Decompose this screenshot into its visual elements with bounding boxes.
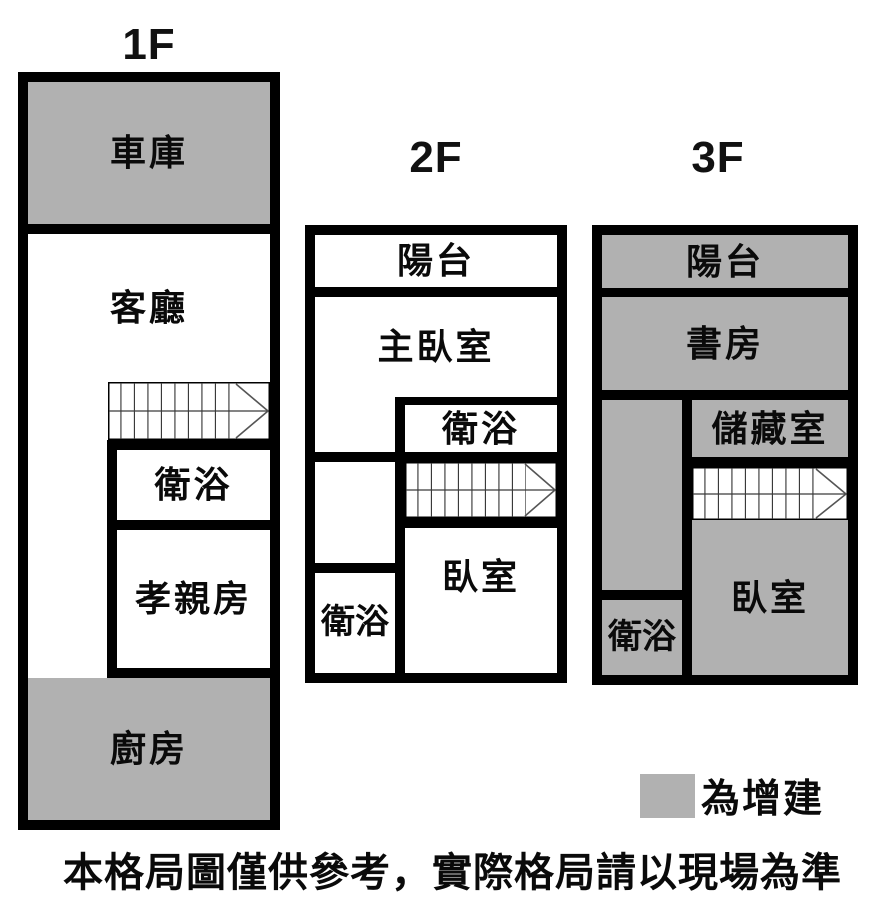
- room-balcony-3f-label: 陽台: [686, 242, 764, 282]
- room-bath-3f: 衛浴: [602, 600, 682, 675]
- room-parents-label: 孝親房: [135, 579, 252, 619]
- addition-swatch: [640, 774, 695, 818]
- room-bedroom-3f-label: 臥室: [731, 578, 809, 618]
- room-living-label: 客廳: [110, 288, 188, 328]
- room-garage: 車庫: [28, 82, 270, 224]
- room-kitchen: 廚房: [28, 678, 270, 820]
- room-bath-3f-label: 衛浴: [608, 619, 676, 656]
- room-bath-2f-upper-label: 衛浴: [442, 409, 520, 449]
- floorplan-canvas: 1F 車庫 客廳 衛浴 孝親房 廚房 2F: [0, 0, 889, 890]
- floorplan-2f: 陽台 主臥室 衛浴 臥室 衛浴: [305, 225, 567, 683]
- room-living: 客廳: [28, 234, 270, 382]
- wall: [602, 390, 848, 400]
- wall: [682, 457, 848, 467]
- room-master-bedroom: 主臥室: [315, 297, 557, 397]
- wall: [602, 288, 848, 297]
- floorplan-1f: 車庫 客廳 衛浴 孝親房 廚房: [18, 72, 280, 830]
- room-bath-2f-lower-label: 衛浴: [321, 604, 389, 641]
- wall: [315, 563, 395, 573]
- room-bath-2f-upper: 衛浴: [405, 405, 557, 452]
- room-balcony-3f: 陽台: [602, 235, 848, 288]
- legend-label: 為增建: [701, 768, 824, 824]
- room-bath-2f-lower: 衛浴: [315, 573, 395, 673]
- wall: [395, 518, 557, 528]
- room-balcony-2f: 陽台: [315, 235, 557, 287]
- wall: [107, 668, 270, 678]
- room-bedroom-3f: 臥室: [692, 520, 848, 675]
- wall: [602, 590, 682, 600]
- room-bedroom-2f: 臥室: [405, 528, 557, 673]
- stairs-1f-icon: [108, 382, 270, 440]
- stairs-2f-icon: [405, 462, 557, 518]
- room-balcony-2f-label: 陽台: [397, 241, 475, 281]
- wall: [107, 520, 270, 530]
- room-storage-label: 儲藏室: [711, 409, 828, 449]
- floor-title-2f: 2F: [305, 135, 567, 181]
- room-study-label: 書房: [686, 324, 764, 364]
- wall: [395, 397, 405, 673]
- legend: 為增建: [640, 768, 824, 824]
- hallway-3f: [602, 400, 682, 590]
- room-bath-1f: 衛浴: [117, 450, 270, 520]
- wall: [315, 452, 557, 462]
- disclaimer-text: 本格局圖僅供參考，實際格局請以現場為準: [0, 840, 889, 898]
- room-parents: 孝親房: [117, 530, 270, 668]
- room-study: 書房: [602, 297, 848, 390]
- wall: [395, 397, 557, 405]
- wall: [107, 440, 117, 678]
- room-kitchen-label: 廚房: [110, 729, 188, 769]
- floorplan-3f: 陽台 書房 儲藏室 臥室 衛浴: [592, 225, 858, 685]
- floor-title-1f: 1F: [18, 22, 280, 68]
- wall: [107, 440, 270, 450]
- wall: [28, 224, 270, 234]
- room-bath-1f-label: 衛浴: [154, 465, 232, 505]
- room-storage: 儲藏室: [692, 400, 848, 457]
- floor-title-3f: 3F: [592, 135, 844, 181]
- room-master-bedroom-label: 主臥室: [377, 327, 494, 367]
- room-garage-label: 車庫: [110, 133, 188, 173]
- room-bedroom-2f-label: 臥室: [442, 557, 520, 597]
- stairs-3f-icon: [692, 467, 848, 520]
- wall: [682, 400, 692, 675]
- wall: [315, 287, 557, 297]
